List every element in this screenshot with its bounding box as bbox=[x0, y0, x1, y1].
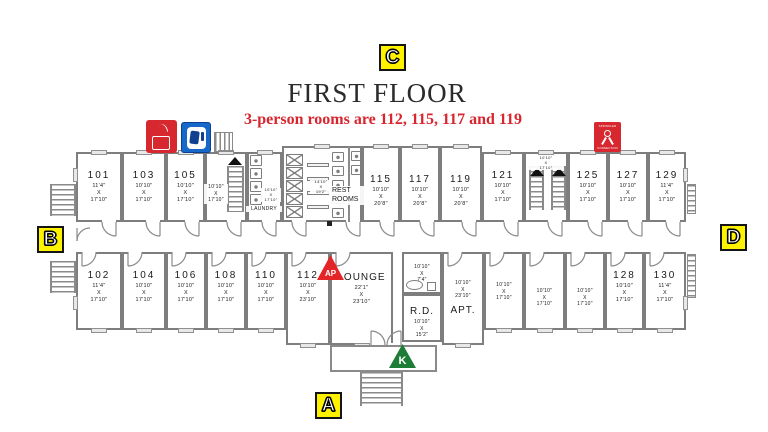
room-number: 108 bbox=[215, 270, 238, 281]
room-dims: 10'10"X17'10" bbox=[537, 288, 553, 308]
elevator-shaft-cell bbox=[286, 193, 303, 205]
marker-c: C bbox=[379, 44, 406, 71]
room-dims: 10'10"X17'10" bbox=[577, 288, 593, 308]
lounge: LOUNGE22'1"X23'10" bbox=[330, 252, 393, 345]
room-dims: 10'10"X23'10" bbox=[299, 283, 316, 304]
room-dims: 10'10"X20'8" bbox=[452, 187, 469, 208]
sprinkler-icon-bottom-text: CONNECTION bbox=[594, 146, 621, 150]
rd-room: R.D.10'10"X15'2" bbox=[402, 294, 442, 342]
room-106: 10610'10"X17'10" bbox=[166, 252, 206, 330]
room-125: 12510'10"X17'10" bbox=[568, 152, 608, 222]
room-108: 10810'10"X17'10" bbox=[206, 252, 246, 330]
room-number: 129 bbox=[656, 170, 679, 181]
window-tick bbox=[178, 328, 194, 333]
room-128: 12810'10"X17'10" bbox=[605, 252, 644, 330]
room-dims: 10'10"X17'10" bbox=[177, 283, 194, 304]
marker-b: B bbox=[37, 226, 64, 253]
apt-room-3: 10'10"X17'10" bbox=[565, 252, 605, 330]
window-tick bbox=[537, 328, 553, 333]
room-number: 112 bbox=[297, 270, 319, 281]
toilet-icon bbox=[351, 151, 362, 161]
east-fire-escape-upper bbox=[687, 184, 696, 214]
window-tick bbox=[453, 144, 469, 149]
sprinkler-icon-top-text: SPRINKLER bbox=[594, 124, 621, 128]
window-tick bbox=[73, 296, 78, 310]
room-number: 130 bbox=[654, 270, 677, 281]
floor-plan: FIRST FLOOR 3-person rooms are 112, 115,… bbox=[0, 0, 768, 432]
room-dims: 11'4"X17'10" bbox=[90, 183, 107, 204]
window-tick bbox=[495, 150, 511, 155]
room-104: 10410'10"X17'10" bbox=[122, 252, 166, 330]
window-tick bbox=[538, 150, 554, 155]
window-tick bbox=[577, 328, 593, 333]
room-119: 11910'10"X20'8" bbox=[440, 146, 482, 222]
phone-handset-glyph bbox=[189, 131, 200, 145]
east-fire-escape-lower bbox=[687, 254, 696, 298]
room-number: 127 bbox=[617, 170, 640, 181]
window-tick bbox=[314, 144, 330, 149]
window-tick bbox=[659, 150, 675, 155]
room-number: 102 bbox=[88, 270, 111, 281]
restroom-wall bbox=[348, 146, 350, 222]
room-dims: 10'10"X15'2" bbox=[414, 319, 430, 339]
emergency-phone-icon bbox=[181, 122, 211, 153]
room-115: 11510'10"X20'8" bbox=[362, 146, 400, 222]
room-dims: 10'10"X17'10" bbox=[177, 183, 194, 204]
room-dims: 10'10"X17'10" bbox=[616, 283, 633, 304]
window-tick bbox=[91, 328, 107, 333]
laundry-label: LAUNDRY bbox=[246, 206, 282, 212]
window-tick bbox=[620, 150, 636, 155]
elevator-shaft-cell bbox=[286, 154, 303, 166]
room-label: LOUNGE bbox=[337, 272, 385, 283]
room-dims: 10'10"X17'10" bbox=[135, 283, 152, 304]
elevator-shaft-cell bbox=[286, 206, 303, 218]
toilet-icon bbox=[351, 165, 362, 175]
window-tick bbox=[683, 296, 688, 310]
room-label: R.D. bbox=[410, 306, 434, 317]
west-staircase bbox=[227, 166, 244, 212]
room-105: 10510'10"X17'10" bbox=[166, 152, 205, 222]
room-number: 125 bbox=[577, 170, 600, 181]
room-dims: 10'10"X17'10" bbox=[496, 282, 512, 302]
room-number: 128 bbox=[613, 270, 636, 281]
window-tick bbox=[136, 328, 152, 333]
room-121: 12110'10"X17'10" bbox=[482, 152, 524, 222]
room-number: 103 bbox=[133, 170, 156, 181]
room-129: 12911'4"X17'10" bbox=[648, 152, 686, 222]
room-number: 106 bbox=[175, 270, 198, 281]
three-person-rooms-note: 3-person rooms are 112, 115, 117 and 119 bbox=[0, 111, 766, 129]
window-tick bbox=[373, 144, 389, 149]
north-exterior-steps bbox=[214, 132, 233, 152]
room-dims: 10'10"X17'10" bbox=[257, 283, 274, 304]
room-dims: 11'4"X17'10" bbox=[656, 283, 673, 304]
washer-icon bbox=[250, 168, 262, 179]
west-fire-escape-lower bbox=[50, 261, 76, 293]
window-tick bbox=[258, 328, 274, 333]
room-number: 110 bbox=[255, 270, 277, 281]
west-stair-up-arrow bbox=[228, 157, 242, 165]
window-tick bbox=[683, 168, 688, 182]
room-dims: 10'10"X23'10" bbox=[455, 280, 471, 300]
room-dims: 10'10"X17'10" bbox=[494, 183, 511, 204]
kitchen-counter-icon bbox=[427, 282, 436, 291]
room-dims: 11'4"X17'10" bbox=[90, 283, 107, 304]
room-dims: 10'10"X20'8" bbox=[411, 187, 428, 208]
kitchen-table-icon bbox=[406, 280, 423, 290]
entrance-stoop bbox=[330, 345, 437, 372]
toilet-icon bbox=[332, 152, 344, 162]
restroom-dims: 14'10" X 19'2" bbox=[310, 180, 332, 194]
room-number: 101 bbox=[88, 170, 111, 181]
window-tick bbox=[91, 150, 107, 155]
room-127: 12710'10"X17'10" bbox=[608, 152, 648, 222]
sprinkler-connection-icon: SPRINKLER CONNECTION bbox=[594, 122, 621, 152]
window-tick bbox=[257, 150, 273, 155]
room-dims: 10'10"X17'10" bbox=[579, 183, 596, 204]
marker-a: A bbox=[315, 392, 342, 419]
room-dims: 22'1"X23'10" bbox=[353, 285, 370, 306]
window-tick bbox=[218, 328, 234, 333]
room-102: 10211'4"X17'10" bbox=[76, 252, 122, 330]
room-number: 119 bbox=[450, 174, 472, 185]
restroom-partition bbox=[307, 205, 329, 209]
page-title: FIRST FLOOR bbox=[0, 78, 754, 109]
room-130: 13011'4"X17'10" bbox=[644, 252, 686, 330]
entrance-steps bbox=[360, 372, 403, 406]
corridor-column bbox=[327, 221, 332, 226]
room-number: 121 bbox=[492, 170, 515, 181]
restroom-partition bbox=[307, 163, 329, 167]
room-number: 105 bbox=[174, 170, 197, 181]
room-110: 11010'10"X17'10" bbox=[246, 252, 286, 330]
window-tick bbox=[657, 328, 673, 333]
window-tick bbox=[617, 328, 633, 333]
toilet-icon bbox=[332, 208, 344, 218]
west-stair-dims: 10'10" X 17'10" bbox=[204, 184, 228, 204]
toilet-icon bbox=[332, 166, 344, 176]
apt-room-1: 10'10"X17'10" bbox=[484, 252, 524, 330]
window-tick bbox=[73, 168, 78, 182]
room-number: 104 bbox=[133, 270, 156, 281]
room-dims: 10'10"X20'8" bbox=[372, 187, 389, 208]
sprinkler-leg-glyph bbox=[601, 137, 607, 145]
room-103: 10310'10"X17'10" bbox=[122, 152, 166, 222]
room-dims: 10'10"X17'10" bbox=[217, 283, 234, 304]
phone-slot-glyph bbox=[201, 132, 204, 141]
sprinkler-ring-glyph bbox=[604, 130, 611, 137]
window-tick bbox=[496, 328, 512, 333]
room-117: 11710'10"X20'8" bbox=[400, 146, 440, 222]
room-dims: 10'10"X17'10" bbox=[619, 183, 636, 204]
apartment: 10'10"X23'10"APT. bbox=[442, 252, 484, 345]
apt-room-2: 10'10"X17'10" bbox=[524, 252, 565, 330]
room-101: 10111'4"X17'10" bbox=[76, 152, 122, 222]
restrooms-label: REST ROOMS bbox=[330, 186, 364, 205]
washer-icon bbox=[250, 155, 262, 166]
elevator-shaft-cell bbox=[286, 180, 303, 192]
sprinkler-leg-glyph bbox=[608, 137, 614, 145]
west-fire-escape-upper bbox=[50, 184, 76, 216]
east-stair-dims: 10'10" X 17'10" bbox=[528, 156, 564, 170]
window-tick bbox=[300, 343, 316, 348]
window-tick bbox=[412, 144, 428, 149]
fire-extinguisher-icon bbox=[146, 120, 177, 153]
laundry-dims: 10'10" X 17'10" bbox=[261, 188, 281, 202]
window-tick bbox=[455, 343, 471, 348]
cabinet-glyph bbox=[152, 136, 170, 150]
marker-d: D bbox=[720, 224, 747, 251]
room-dims: 10'10"X17'10" bbox=[135, 183, 152, 204]
room-number: 115 bbox=[370, 174, 392, 185]
room-label: APT. bbox=[450, 305, 475, 316]
room-112: 11210'10"X23'10" bbox=[286, 252, 330, 345]
flame-glyph bbox=[159, 122, 169, 134]
room-dims: 11'4"X17'10" bbox=[658, 183, 675, 204]
elevator-shaft-cell bbox=[286, 167, 303, 179]
room-number: 117 bbox=[409, 174, 431, 185]
